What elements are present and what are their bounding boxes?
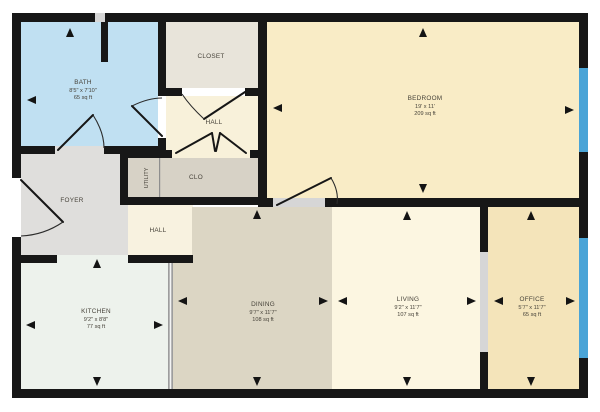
office-dims: 5'7" x 11'7"	[518, 305, 545, 311]
bedroom-dims: 19' x 11'	[415, 104, 435, 110]
wall-segment	[158, 13, 166, 96]
utility-clo-divider	[159, 158, 160, 197]
bath-area: 65 sq ft	[74, 95, 93, 101]
closet-label: CLOSET	[197, 53, 224, 60]
wall-segment	[12, 255, 57, 263]
living-area: 107 sq ft	[397, 312, 419, 318]
office-label: OFFICE	[520, 296, 545, 303]
floor-plan: BATH 8'5" x 7'10" 65 sq ft CLOSET HALL U…	[0, 0, 600, 412]
dining-area: 108 sq ft	[252, 317, 274, 323]
bath-dims: 8'5" x 7'10"	[69, 88, 97, 94]
floor-plan-canvas: BATH 8'5" x 7'10" 65 sq ft CLOSET HALL U…	[0, 0, 600, 412]
wall-segment	[12, 13, 95, 22]
office-window	[579, 238, 588, 358]
wall-gap	[95, 13, 105, 22]
bedroom-window	[579, 68, 588, 152]
wall-segment	[12, 389, 588, 398]
living-dims: 9'2" x 11'7"	[394, 305, 421, 311]
wall-segment	[120, 197, 267, 205]
room-hall-lower	[128, 205, 193, 263]
wall-segment	[579, 152, 588, 238]
dining-label: DINING	[251, 301, 275, 308]
office-area: 65 sq ft	[523, 312, 542, 318]
hall-upper-label: HALL	[206, 119, 223, 126]
wall-segment	[105, 13, 588, 22]
wall-segment	[250, 150, 267, 158]
wall-segment	[480, 352, 488, 398]
kitchen-label: KITCHEN	[81, 308, 111, 315]
kitchen-dims: 9'2" x 8'8"	[84, 317, 108, 323]
bedroom-area: 209 sq ft	[414, 111, 436, 117]
wall-segment	[579, 358, 588, 398]
clo-label: CLO	[189, 174, 203, 181]
wall-segment	[480, 198, 488, 252]
utility-label: UTILITY	[144, 167, 150, 188]
room-hall-upper	[166, 96, 258, 158]
office-passage	[480, 252, 488, 352]
wall-segment	[579, 13, 588, 68]
wall-segment	[120, 150, 128, 205]
bedroom-label: BEDROOM	[408, 95, 443, 102]
wall-segment	[12, 146, 55, 154]
wall-segment	[158, 88, 182, 96]
kitchen-area: 77 sq ft	[87, 324, 106, 330]
foyer-label: FOYER	[60, 197, 83, 204]
room-foyer	[21, 146, 128, 263]
room-bedroom	[267, 22, 579, 198]
kitchen-divider-inner	[170, 263, 172, 389]
bath-label: BATH	[74, 79, 92, 86]
living-label: LIVING	[397, 296, 419, 303]
wall-segment	[128, 255, 193, 263]
hall-lower-label: HALL	[150, 227, 167, 234]
wall-segment	[258, 13, 267, 205]
shower-partition	[101, 22, 108, 62]
dining-dims: 9'7" x 11'7"	[249, 310, 276, 316]
wall-segment	[325, 198, 588, 207]
room-dining	[173, 207, 332, 389]
